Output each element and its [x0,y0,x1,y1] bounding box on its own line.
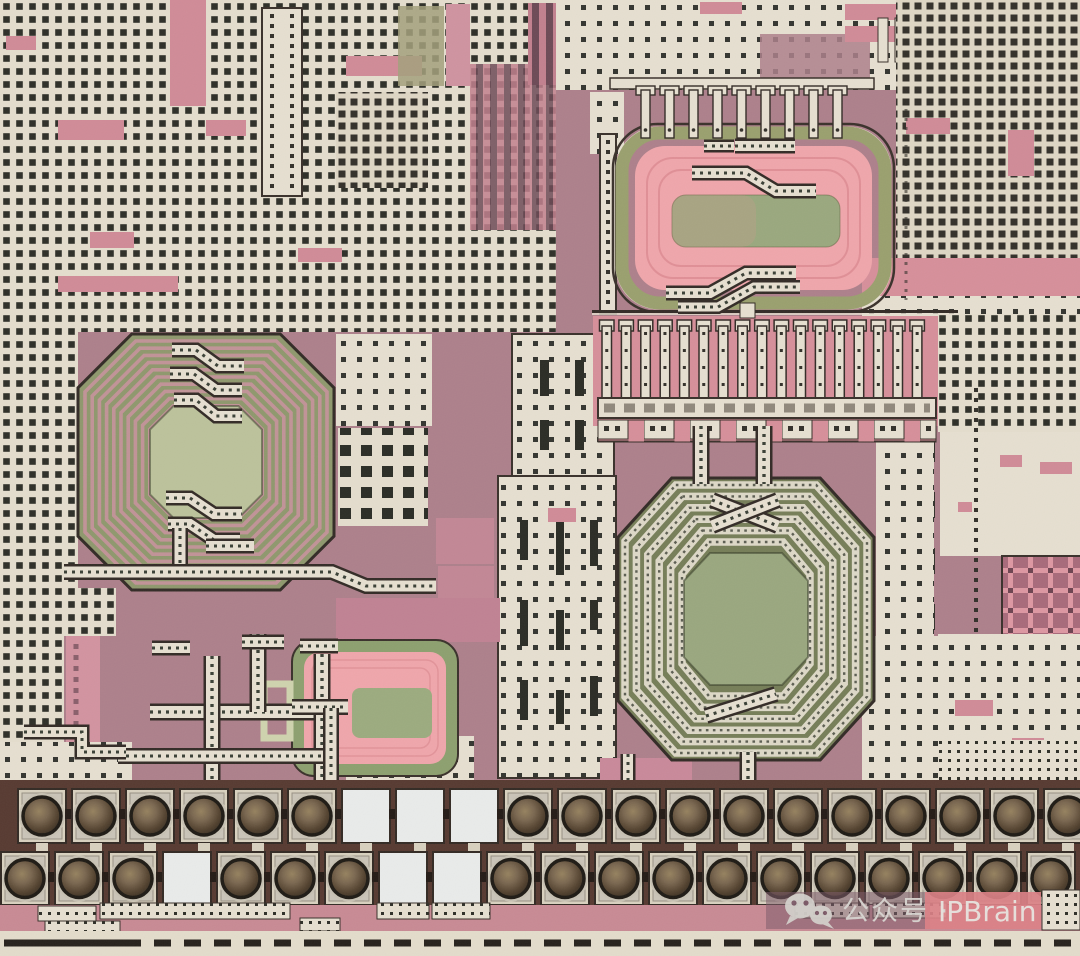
die-photo: 公众号 · IPBrain [0,0,1080,956]
film-grain-overlay [0,0,1080,956]
die-photo-canvas: 公众号 · IPBrain [0,0,1080,956]
